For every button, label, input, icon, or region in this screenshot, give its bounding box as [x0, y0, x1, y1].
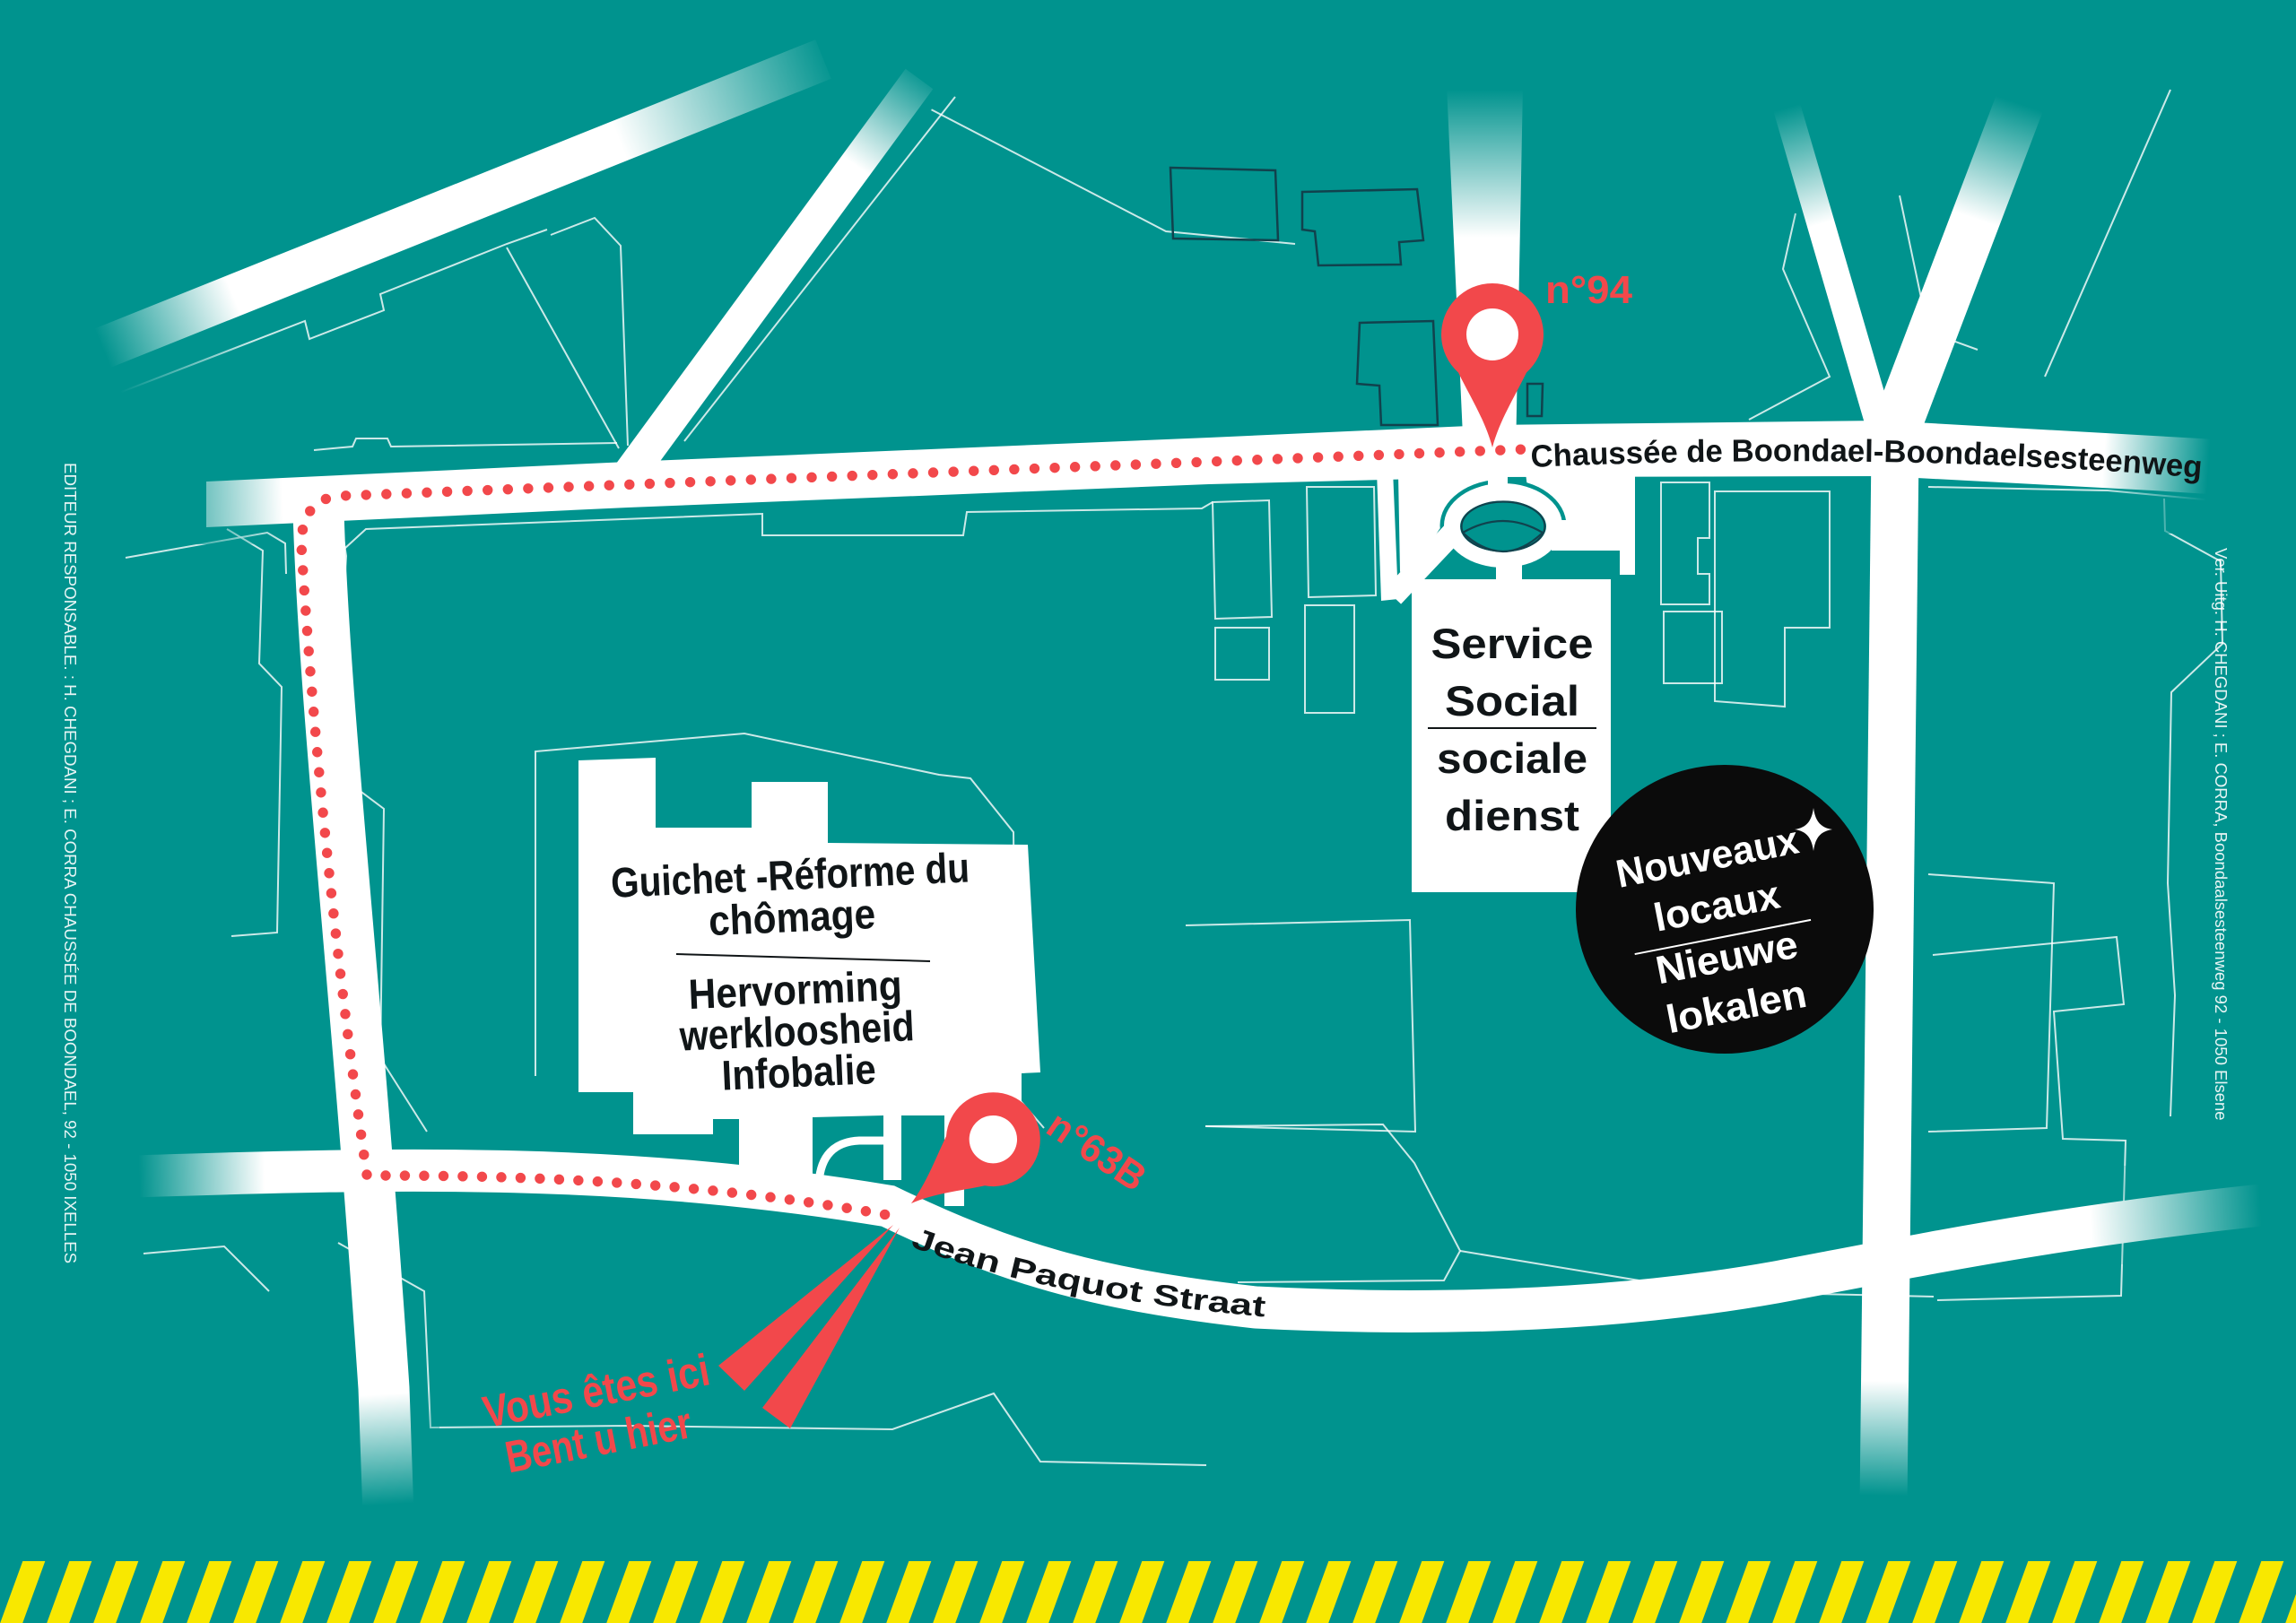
- svg-text:EDITEUR RESPONSABLE. : H. CHEG: EDITEUR RESPONSABLE. : H. CHEGDANI ; E. …: [61, 463, 80, 1263]
- svg-text:chômage: chômage: [708, 890, 876, 944]
- svg-text:Social: Social: [1445, 677, 1579, 725]
- svg-text:n°94: n°94: [1545, 268, 1633, 312]
- svg-text:dienst: dienst: [1445, 792, 1579, 839]
- svg-text:Infobalie: Infobalie: [721, 1045, 877, 1098]
- svg-text:sociale: sociale: [1437, 734, 1587, 782]
- svg-text:Service: Service: [1431, 620, 1594, 667]
- svg-text:Ver. Uitg. H. CHEGDANI ; E. CO: Ver. Uitg. H. CHEGDANI ; E. CORRA, Boond…: [2212, 548, 2231, 1121]
